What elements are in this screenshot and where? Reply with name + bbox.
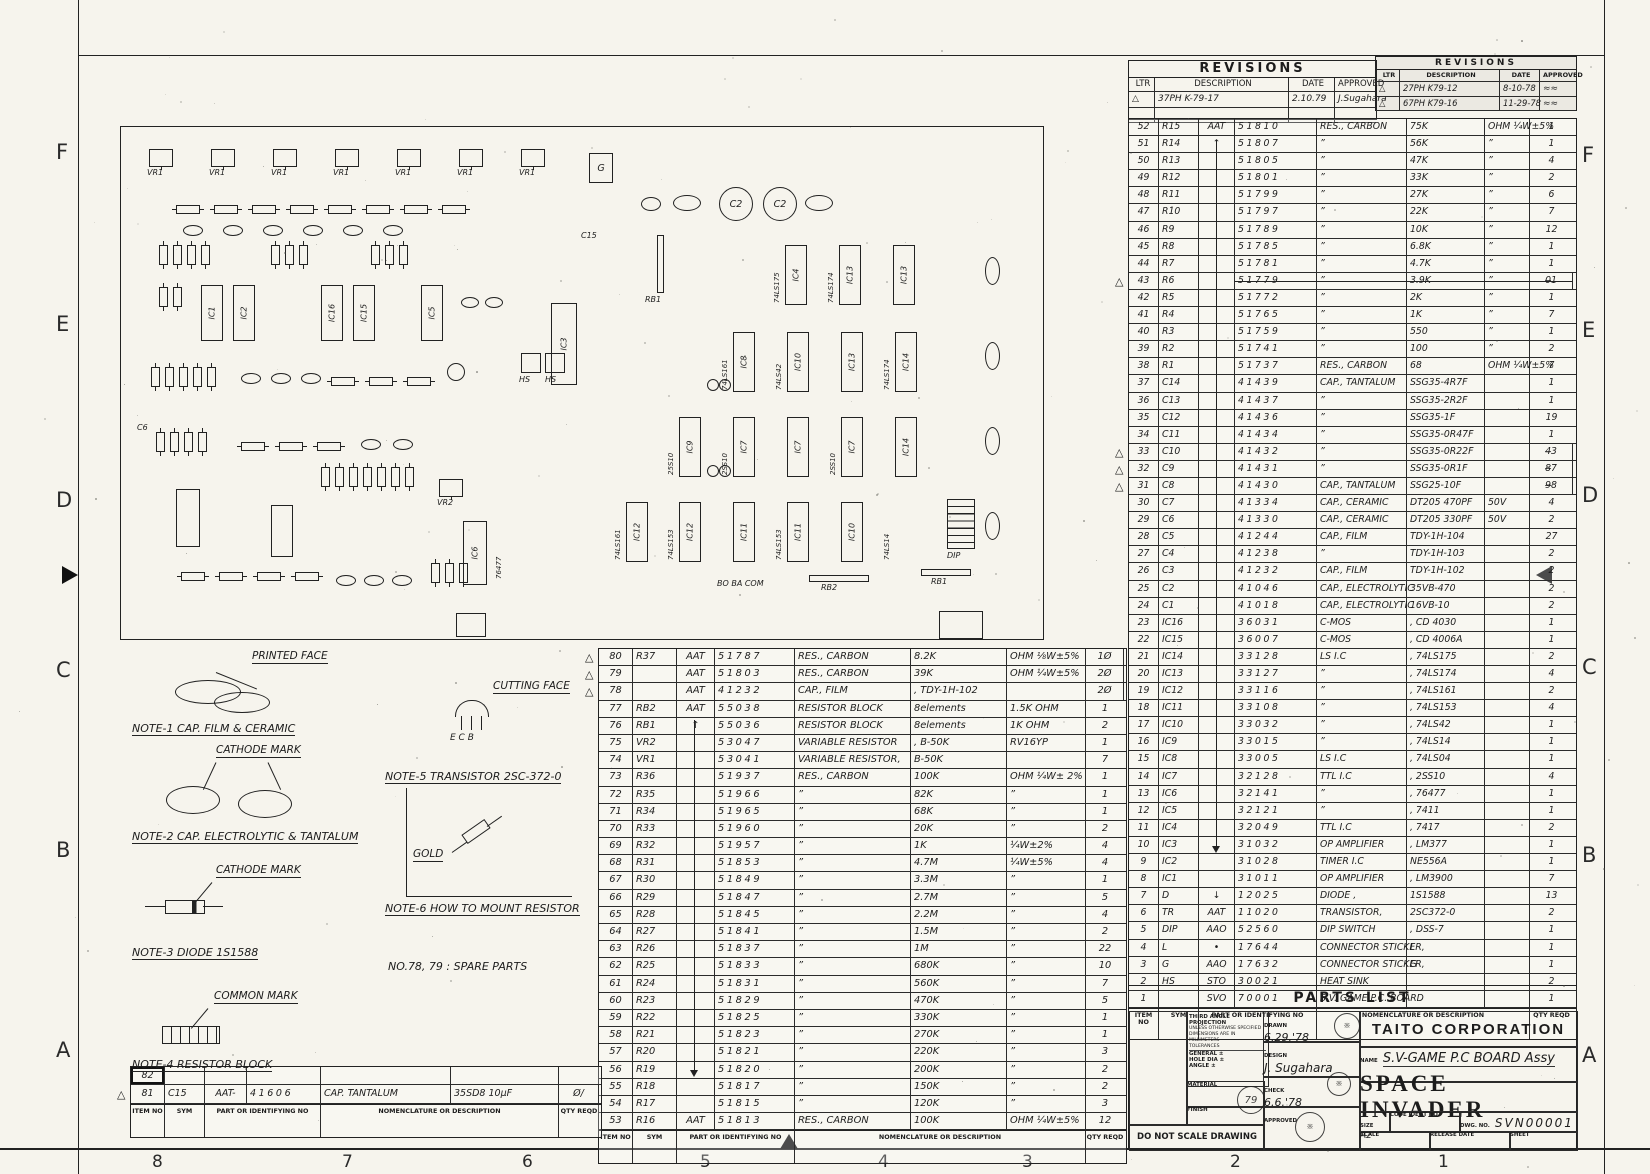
pcb-rh xyxy=(369,377,393,386)
cell-item: 40 xyxy=(1129,324,1159,340)
cell-d0 xyxy=(321,1067,451,1084)
cell-sym: C11 xyxy=(1159,427,1199,443)
cell-item: 20 xyxy=(1129,666,1159,682)
cell-num: 51966 xyxy=(715,787,795,803)
cell-sym: R33 xyxy=(633,821,677,837)
pcb-ic12: IC12 xyxy=(679,502,701,562)
cell-item: 16 xyxy=(1129,734,1159,750)
cell-d1: , 74LS161 xyxy=(1407,683,1485,699)
pcb-vr1: VR1 xyxy=(149,149,173,167)
cell-item: 80 xyxy=(599,649,633,665)
cell-num: 51785 xyxy=(1235,239,1317,255)
cell-d2: 1K OHM xyxy=(1007,718,1086,734)
cell-appr xyxy=(1540,97,1573,111)
pcb-oval xyxy=(361,439,381,450)
revision-triangle-marker: △ xyxy=(1112,479,1123,495)
pcb-rv xyxy=(385,245,394,265)
cell-pfx xyxy=(677,821,715,837)
zone-letter-right: E xyxy=(1582,318,1595,342)
pcb-oval xyxy=(447,363,465,381)
cell-d0: CAP., FILM xyxy=(1317,563,1407,579)
cell-item: 34 xyxy=(1129,427,1159,443)
cell-d2 xyxy=(1485,683,1530,699)
pcb-ref-label: IC13 xyxy=(846,266,855,284)
table-row: 78AAT41232CAP., FILM, TDY-1H-1022Ø△ xyxy=(599,683,1126,700)
pcb-box xyxy=(456,613,486,637)
revisions-rows: △27PH K79-128-10-78△67PH K79-1611-29-78 xyxy=(1376,82,1576,111)
cell-desc: 37PH K-79-17 xyxy=(1155,92,1289,107)
cell-d0: CAP., CERAMIC xyxy=(1317,495,1407,511)
cell-sym: R31 xyxy=(633,855,677,871)
cell-d0: TIMER I.C xyxy=(1317,854,1407,870)
cell-sym: IC14 xyxy=(1159,649,1199,665)
cell-num: 31032 xyxy=(1235,837,1317,853)
cell-pfx xyxy=(1199,854,1235,870)
cell-qty: 2 xyxy=(1086,1079,1124,1095)
pcb-ref-label: VR1 xyxy=(395,168,411,177)
cell-d1: 39K xyxy=(911,666,1007,682)
pcb-oval xyxy=(383,225,403,236)
cell-item: 71 xyxy=(599,804,633,820)
cell-qty: 2 xyxy=(1086,924,1124,940)
axis-sketch xyxy=(406,896,572,897)
table-row: 27C441238”TDY-1H-1032 xyxy=(1129,546,1576,563)
speckle xyxy=(455,682,457,684)
pcb-oval xyxy=(183,225,203,236)
table-row: 63R2651837”1M”22 xyxy=(599,941,1126,958)
cell-d2: OHM ¼W±5% xyxy=(1007,1113,1086,1129)
pcb-rh xyxy=(219,572,243,581)
cell-num: 33108 xyxy=(1235,700,1317,716)
speckle xyxy=(87,950,89,952)
cell-d1: 2.7M xyxy=(911,890,1007,906)
cell-sym: R23 xyxy=(633,993,677,1009)
pcb-rv xyxy=(156,432,165,452)
cell-qty: 5 xyxy=(1086,890,1124,906)
cell-d0: ” xyxy=(1317,290,1407,306)
table-row: 6TRAAT11020TRANSISTOR,2SC372-02 xyxy=(1129,905,1576,922)
cell-d0: ” xyxy=(1317,700,1407,716)
cell-item: 48 xyxy=(1129,187,1159,203)
cell-d0: CAP., FILM xyxy=(795,683,911,699)
cell-sym: R9 xyxy=(1159,222,1199,238)
cell-d0: CONNECTOR STICKER, xyxy=(1317,940,1407,956)
cell-num: 36031 xyxy=(1235,615,1317,631)
speckle xyxy=(416,757,418,759)
table-row: LTRDESCRIPTIONDATEAPPROVED xyxy=(1129,78,1376,92)
pcb-oval xyxy=(461,297,479,308)
pcb-ic16: IC16 xyxy=(321,285,343,341)
cell-d0: ” xyxy=(795,1010,911,1026)
zone-letter-left: F xyxy=(56,140,68,164)
cell-pfx: AAT xyxy=(1199,119,1235,135)
cell-item: 62 xyxy=(599,958,633,974)
zone-letter-left: A xyxy=(56,1038,70,1062)
cell-d2 xyxy=(1485,717,1530,733)
cell-qty: 2 xyxy=(1530,649,1573,665)
cell-d2 xyxy=(1485,751,1530,767)
speckle xyxy=(232,1054,234,1056)
cell-num: 51847 xyxy=(715,890,795,906)
cell-qty: Ø/ xyxy=(559,1085,599,1103)
cell-pfx xyxy=(677,890,715,906)
cell-d1: 82K xyxy=(911,787,1007,803)
callout-arrow xyxy=(191,1008,208,1029)
cell-item: 22 xyxy=(1129,632,1159,648)
cell-pfx xyxy=(1199,598,1235,614)
product-title: SPACE INVADER xyxy=(1359,1081,1578,1113)
table-row: 10IC331032OP AMPLIFIER, LM3771 xyxy=(1129,837,1576,854)
cell-item: 60 xyxy=(599,993,633,1009)
cell-sym: IC8 xyxy=(1159,751,1199,767)
table-row: 26C341232CAP., FILMTDY-1H-1022 xyxy=(1129,563,1576,580)
col-item-no: ITEM NO xyxy=(599,1131,633,1163)
cell-d2: ” xyxy=(1007,787,1086,803)
cell-qty: 3 xyxy=(1086,1096,1124,1112)
cell-pfx xyxy=(1199,632,1235,648)
cell-num: 51957 xyxy=(715,838,795,854)
cell-qty: 1 xyxy=(1530,957,1573,973)
table-row: 65R2851845”2.2M”4 xyxy=(599,907,1126,924)
cell-d1: 100 xyxy=(1407,341,1485,357)
cell-d2: ” xyxy=(1485,239,1530,255)
table-row: △67PH K79-1611-29-78 xyxy=(1376,97,1576,112)
table-row: 12IC532121”, 74111 xyxy=(1129,803,1576,820)
cell-d1: , 7411 xyxy=(1407,803,1485,819)
speckle xyxy=(517,707,518,708)
cell-pfx: AAT xyxy=(677,683,715,699)
pcb-rh xyxy=(279,442,303,451)
cell-sym xyxy=(633,666,677,682)
pcb-74ls153: 74LS153 xyxy=(775,529,783,560)
cell-d2 xyxy=(1485,871,1530,887)
cell-sym: R5 xyxy=(1159,290,1199,306)
cell-pfx xyxy=(1199,649,1235,665)
pcb-bar xyxy=(657,235,664,293)
cell-d2 xyxy=(1485,632,1530,648)
cell-d0: ” xyxy=(795,821,911,837)
cell-d1: , LM3900 xyxy=(1407,871,1485,887)
cell-item: 56 xyxy=(599,1062,633,1078)
cell-pfx xyxy=(677,907,715,923)
table-row: 9IC231028TIMER I.CNE556A1 xyxy=(1129,854,1576,871)
cell-qty: 1 xyxy=(1530,615,1573,631)
pcb-76477: 76477 xyxy=(495,557,503,579)
cell-qty: 2 xyxy=(1530,598,1573,614)
cell-d1: NE556A xyxy=(1407,854,1485,870)
cell-item: 58 xyxy=(599,1027,633,1043)
cell-pfx xyxy=(677,1044,715,1060)
cell-sym: C2 xyxy=(1159,581,1199,597)
pcb-74ls153: 74LS153 xyxy=(667,529,675,560)
speckle xyxy=(1096,560,1097,561)
resistor-sketch xyxy=(461,819,490,844)
cell-pfx xyxy=(1199,803,1235,819)
pcb-rh xyxy=(366,205,390,214)
stamp-79: 79 xyxy=(1237,1086,1265,1114)
do-not-scale-note: DO NOT SCALE DRAWING xyxy=(1129,1124,1265,1151)
pcb-ref-label: IC7 xyxy=(740,440,749,453)
revision-triangle-marker: △ xyxy=(1112,462,1123,478)
cell-sym: R3 xyxy=(1159,324,1199,340)
cell-sym: IC15 xyxy=(1159,632,1199,648)
cell-qty: 2 xyxy=(1530,581,1573,597)
cell-pfx xyxy=(1199,375,1235,391)
pcb-rh xyxy=(442,205,466,214)
cell-d2: ¼W±5% xyxy=(1007,855,1086,871)
cell-qty: 1 xyxy=(1530,256,1573,272)
cell-num: 51781 xyxy=(1235,256,1317,272)
cell-pfx xyxy=(1199,666,1235,682)
pcb-ref-label: VR1 xyxy=(209,168,225,177)
cell-num: 51833 xyxy=(715,958,795,974)
cell-d1: , 74LS153 xyxy=(1407,700,1485,716)
cell-num: 51853 xyxy=(715,855,795,871)
table-row: 20IC1333127”, 74LS1744 xyxy=(1129,666,1576,683)
cell-qty: 1 xyxy=(1530,632,1573,648)
cell-pfx xyxy=(1199,204,1235,220)
pcb-ref-label: IC7 xyxy=(848,440,857,453)
pcb-ref-label: IC1 xyxy=(208,306,217,319)
cell-d1: 20K xyxy=(911,821,1007,837)
pcb-ref-label: IC13 xyxy=(900,266,909,284)
cell-qty: 2 xyxy=(1086,821,1124,837)
pcb-oval xyxy=(485,297,503,308)
pcb-hs: HS xyxy=(545,375,556,384)
cell-d2 xyxy=(1485,563,1530,579)
col-part-no: PART OR IDENTIFYING NO xyxy=(677,1131,795,1163)
cell-pfx xyxy=(677,787,715,803)
cell-d0: ” xyxy=(795,838,911,854)
cell-qty: 5 xyxy=(1086,993,1124,1009)
table-row: 55R1851817”150K”2 xyxy=(599,1079,1126,1096)
cell-item: 21 xyxy=(1129,649,1159,665)
table-row: 24C141018CAP., ELECTROLYTIC16VB-102 xyxy=(1129,598,1576,615)
cell-d0: CAP., FILM xyxy=(1317,529,1407,545)
cell-item: 13 xyxy=(1129,786,1159,802)
callout-arrow xyxy=(216,672,257,689)
cell-d2 xyxy=(1485,478,1530,494)
table-row: 82 xyxy=(131,1067,601,1085)
cell-item: 25 xyxy=(1129,581,1159,597)
zone-letter-left: E xyxy=(56,312,69,336)
table-row: 43R651779”3.9K”0̶1△ xyxy=(1129,273,1576,290)
cell-item: 3 xyxy=(1129,957,1159,973)
pcb-ref-label: IC7 xyxy=(794,440,803,453)
cell-d0: ” xyxy=(1317,393,1407,409)
cell-d0: CAP., ELECTROLYTIC xyxy=(1317,581,1407,597)
cell-sym: C12 xyxy=(1159,410,1199,426)
pcb-ref-label: IC11 xyxy=(740,523,749,541)
pcb-oval xyxy=(673,195,701,211)
table-row: 54R1751815”120K”3 xyxy=(599,1096,1126,1113)
cell-item: 50 xyxy=(1129,153,1159,169)
code-ident-cell: CODE IDENT NO. xyxy=(1389,1111,1461,1133)
cell-item: 28 xyxy=(1129,529,1159,545)
cell-item: 38 xyxy=(1129,358,1159,374)
cell-qty: 1 xyxy=(1530,837,1573,853)
transistor-sketch xyxy=(455,700,489,717)
table-row: 40R351759”550”1 xyxy=(1129,324,1576,341)
cell-qty: 3 xyxy=(1086,1044,1124,1060)
cell-qty: 10 xyxy=(1086,958,1124,974)
cell-num: 51803 xyxy=(715,666,795,682)
speckle xyxy=(214,103,215,104)
cell-d1: B-50K xyxy=(911,752,1007,768)
cell-sym: R2 xyxy=(1159,341,1199,357)
pcb-bo-ba-com: BO BA COM xyxy=(717,579,764,588)
cell-d0: RES., CARBON xyxy=(1317,358,1407,374)
cell-item: 75 xyxy=(599,735,633,751)
cell-qty: 4 xyxy=(1530,495,1573,511)
cell-d2: 1.5K OHM xyxy=(1007,701,1086,717)
cathode-mark-callout: CATHODE MARK xyxy=(216,864,301,878)
pcb-ref-label: IC15 xyxy=(360,304,369,322)
zone-letter-right: B xyxy=(1582,843,1596,867)
cell-sym: R27 xyxy=(633,924,677,940)
cell-item: 72 xyxy=(599,787,633,803)
pcb-oval xyxy=(223,225,243,236)
cell-pfx xyxy=(677,735,715,751)
cell-item: 76 xyxy=(599,718,633,734)
dwg-no-cell: DWG. NO. SVN00001 xyxy=(1459,1111,1578,1133)
cell-item: 78 xyxy=(599,683,633,699)
cell-d2 xyxy=(1485,649,1530,665)
cell-qty xyxy=(559,1067,599,1084)
cell-d1: TDY-1H-103 xyxy=(1407,546,1485,562)
cell-pfx xyxy=(1199,324,1235,340)
cell-d2 xyxy=(1485,905,1530,921)
speckle xyxy=(44,418,46,420)
cell-d1: 16VB-10 xyxy=(1407,598,1485,614)
cell-item: 8 xyxy=(1129,871,1159,887)
cell-sym: G xyxy=(1159,957,1199,973)
pcb-box xyxy=(939,611,983,639)
cell-item: 79 xyxy=(599,666,633,682)
pcb-hbar xyxy=(809,575,869,582)
cell-d2: ” xyxy=(1007,976,1086,992)
zone-number-bottom: 2 xyxy=(1230,1152,1241,1172)
cell-d2: OHM ¼W±5% xyxy=(1485,119,1530,135)
cell-item: 14 xyxy=(1129,769,1159,785)
cell-d2: OHM ¼W± 2% xyxy=(1007,769,1086,785)
cell-d0: RESISTOR BLOCK xyxy=(795,701,911,717)
pcb-ic13: IC13 xyxy=(841,332,863,392)
cell-num: 51829 xyxy=(715,993,795,1009)
table-row: 39R251741”100”2 xyxy=(1129,341,1576,358)
cell-pfx xyxy=(1199,563,1235,579)
cell-sym: R22 xyxy=(633,1010,677,1026)
cell-qty: 4 xyxy=(1086,838,1124,854)
cell-d2 xyxy=(1485,786,1530,802)
cell-d1: SSG25-10F xyxy=(1407,478,1485,494)
cell-item: 19 xyxy=(1129,683,1159,699)
pcb-ic5: IC5 xyxy=(421,285,443,341)
pcb-74ls161: 74LS161 xyxy=(614,529,622,560)
cell-num: 55036 xyxy=(715,718,795,734)
title-block: PARTS LIST THIRD ANGLE PROJECTION UNLESS… xyxy=(1128,985,1577,1150)
pcb-rv xyxy=(335,467,344,487)
cell-d0: ” xyxy=(1317,427,1407,443)
cell-item: 10 xyxy=(1129,837,1159,853)
cell-pfx xyxy=(677,941,715,957)
cell-d2: OHM ⅛W±5% xyxy=(1007,649,1086,665)
cell-pfx xyxy=(1199,512,1235,528)
table-row: 80R37AAT51787RES., CARBON8.2KOHM ⅛W±5%1Ø… xyxy=(599,649,1126,666)
cell-d0: ” xyxy=(795,890,911,906)
cell-sym: R8 xyxy=(1159,239,1199,255)
cell-pfx xyxy=(1199,222,1235,238)
cell-sym: C7 xyxy=(1159,495,1199,511)
table-row: 44R751781”4.7K”1 xyxy=(1129,256,1576,273)
pcb-ref-label: IC6 xyxy=(471,546,480,559)
cell-d0: C-MOS xyxy=(1317,632,1407,648)
speckle xyxy=(204,952,206,954)
cell-d1: TDY-1H-102 xyxy=(1407,563,1485,579)
cell-num: 41334 xyxy=(1235,495,1317,511)
cell-pfx: AAT xyxy=(1199,905,1235,921)
pcb-oval xyxy=(707,379,719,391)
speckle xyxy=(941,50,943,52)
cell-item: 11 xyxy=(1129,820,1159,836)
pcb-ref-label: IC11 xyxy=(794,523,803,541)
cell-pfx xyxy=(1199,444,1235,460)
pcb-rv xyxy=(285,245,294,265)
cell-item: 31 xyxy=(1129,478,1159,494)
revisions-title: REVISIONS xyxy=(1129,61,1376,78)
table-row: 66R2951847”2.7M”5 xyxy=(599,890,1126,907)
cell-sym: IC1 xyxy=(1159,871,1199,887)
pcb-oval xyxy=(263,225,283,236)
cell-d2 xyxy=(1485,529,1530,545)
pcb-box xyxy=(545,353,565,373)
table-row: 16IC933015”, 74LS141 xyxy=(1129,734,1576,751)
cell-num: 55038 xyxy=(715,701,795,717)
cell-d0: ” xyxy=(1317,410,1407,426)
approval-stamp xyxy=(1334,1013,1360,1039)
cell-num: 51831 xyxy=(715,976,795,992)
table-row: 59R2251825”330K”1 xyxy=(599,1010,1126,1027)
cell-qty: 7 xyxy=(1086,752,1124,768)
pcb-rh xyxy=(331,377,355,386)
pcb-ref-label: IC10 xyxy=(848,523,857,541)
cell-num: 51817 xyxy=(715,1079,795,1095)
parts-table-column-headers: ITEM NO SYM PART OR IDENTIFYING NO NOMEN… xyxy=(599,1130,1126,1163)
speckle xyxy=(1625,207,1627,209)
pcb-rv xyxy=(198,432,207,452)
cell-num xyxy=(247,1067,321,1084)
cell-d0: ” xyxy=(1317,136,1407,152)
cell-d1: DT205 470PF xyxy=(1407,495,1485,511)
pcb-ref-label: VR1 xyxy=(147,168,163,177)
cell-item: 26 xyxy=(1129,563,1159,579)
pcb-rv xyxy=(399,245,408,265)
pcb-ref-label: IC16 xyxy=(328,304,337,322)
table-row: 32C941431”SSG35-0R1F8̶7△ xyxy=(1129,461,1576,478)
cell-d0: ” xyxy=(1317,307,1407,323)
cell-qty: 7 xyxy=(1530,358,1573,374)
cell-qty: 27 xyxy=(1530,529,1573,545)
cell-d2: ” xyxy=(1485,273,1530,289)
cell-d2: ” xyxy=(1007,1010,1086,1026)
pcb-ic13: IC13 xyxy=(893,245,915,305)
cell-sym: VR1 xyxy=(633,752,677,768)
cell-pfx xyxy=(677,976,715,992)
cell-qty: 2 xyxy=(1530,512,1573,528)
table-row: 25C241046CAP., ELECTROLYTIC35VB-4702 xyxy=(1129,581,1576,598)
pcb-oval xyxy=(303,225,323,236)
cell-sym: IC4 xyxy=(1159,820,1199,836)
